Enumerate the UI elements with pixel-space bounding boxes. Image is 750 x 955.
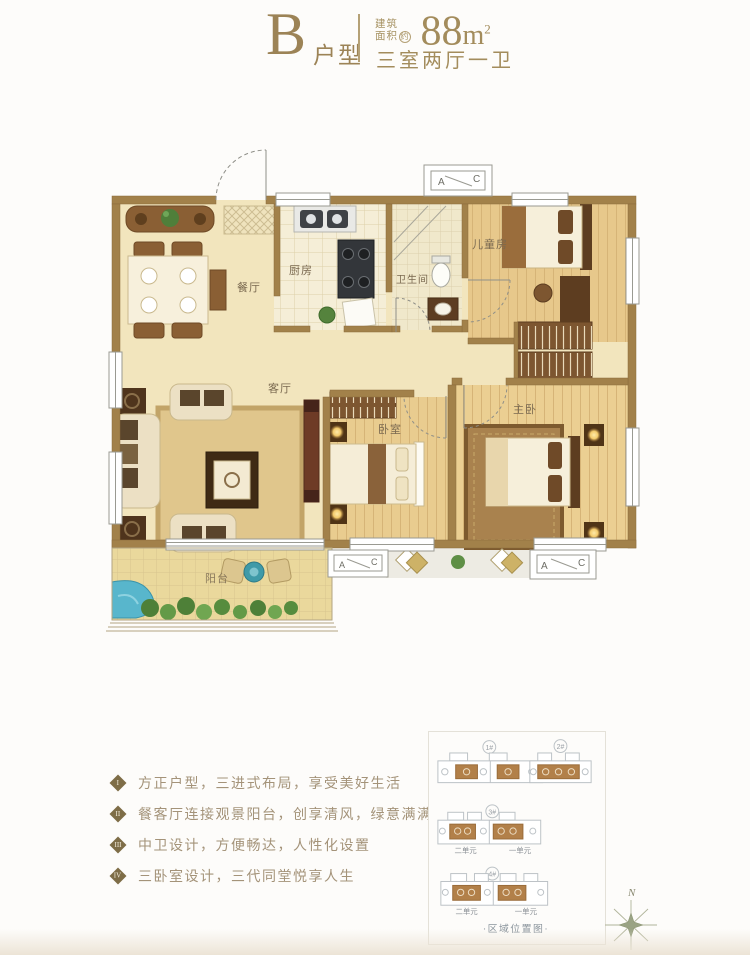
building-1: 1# [438, 741, 543, 783]
room-label-kids: 儿童房 [472, 237, 508, 251]
unit-label-right: 一单元 [515, 906, 538, 916]
building-label: 2# [557, 744, 565, 751]
site-map-title: ·区域位置图· [483, 922, 549, 935]
feature-diamond-icon: III [110, 837, 127, 854]
feature-text: 餐客厅连接观景阳台，创享清风，绿意满满 [138, 804, 433, 824]
feature-text: 三卧室设计，三代同堂悦享人生 [138, 866, 355, 886]
room-label-master: 主卧 [513, 403, 537, 416]
compass-icon: N [598, 882, 664, 952]
unit-type-letter: B [266, 4, 306, 64]
floorplan: A C A C A C [102, 140, 654, 655]
site-map: 1# 2# [428, 731, 606, 945]
feature-item: III 中卫设计，方便畅达，人性化设置 [110, 838, 433, 852]
unit-label-right: 一单元 [509, 845, 532, 855]
area-label: 建筑 面积约 [375, 18, 411, 43]
feature-text: 方正户型，三进式布局，享受美好生活 [138, 773, 402, 793]
room-label-bedroom: 卧室 [378, 422, 402, 436]
unit-type-suffix: 户型 [313, 36, 363, 70]
feature-item: IV 三卧室设计，三代同堂悦享人生 [110, 869, 433, 883]
feature-list: I 方正户型，三进式布局，享受美好生活 II 餐客厅连接观景阳台，创享清风，绿意… [110, 776, 433, 900]
building-3: 3# 二单元 一单元 [438, 805, 541, 855]
room-label-balcony: 阳台 [205, 571, 229, 585]
header-divider [358, 14, 360, 62]
feature-diamond-icon: IV [110, 868, 127, 885]
area-approx-mark: 约 [399, 31, 411, 43]
unit-label-left: 二单元 [454, 845, 477, 855]
building-4: 4# 二单元 一单元 [441, 867, 548, 916]
ac-platform-top: A C [424, 165, 492, 196]
ac-platform-bottom-left: A C [328, 550, 388, 577]
unit-label-left: 二单元 [455, 906, 478, 916]
ac-label-c: C [371, 557, 378, 567]
feature-text: 中卫设计，方便畅达，人性化设置 [138, 835, 371, 855]
ac-label-c: C [578, 558, 585, 569]
building-2: 2# [530, 740, 591, 783]
site-map-drawing: 1# 2# [429, 732, 603, 942]
living-room-furniture [114, 384, 319, 552]
flyer-page: B 户型 建筑 面积约 88m2 三室两厅一卫 [0, 0, 750, 955]
building-label: 4# [488, 872, 496, 879]
rooms-summary: 三室两厅一卫 [376, 44, 576, 73]
ac-platform-bottom-right: A C [530, 550, 596, 579]
feature-diamond-icon: II [110, 806, 127, 823]
room-label-dining: 餐厅 [237, 280, 261, 294]
feature-item: II 餐客厅连接观景阳台，创享清风，绿意满满 [110, 807, 433, 821]
compass-north-label: N [627, 887, 636, 899]
feature-diamond-icon: I [110, 775, 127, 792]
ac-label-a: A [541, 561, 548, 572]
ac-label-a: A [339, 560, 345, 570]
ac-label-a: A [438, 177, 445, 188]
room-label-bathroom: 卫生间 [396, 273, 429, 286]
building-label: 3# [488, 809, 496, 816]
feature-item: I 方正户型，三进式布局，享受美好生活 [110, 776, 433, 790]
room-label-living: 客厅 [268, 381, 292, 395]
building-label: 1# [485, 745, 493, 752]
ac-label-c: C [473, 174, 480, 185]
room-label-kitchen: 厨房 [289, 264, 313, 277]
